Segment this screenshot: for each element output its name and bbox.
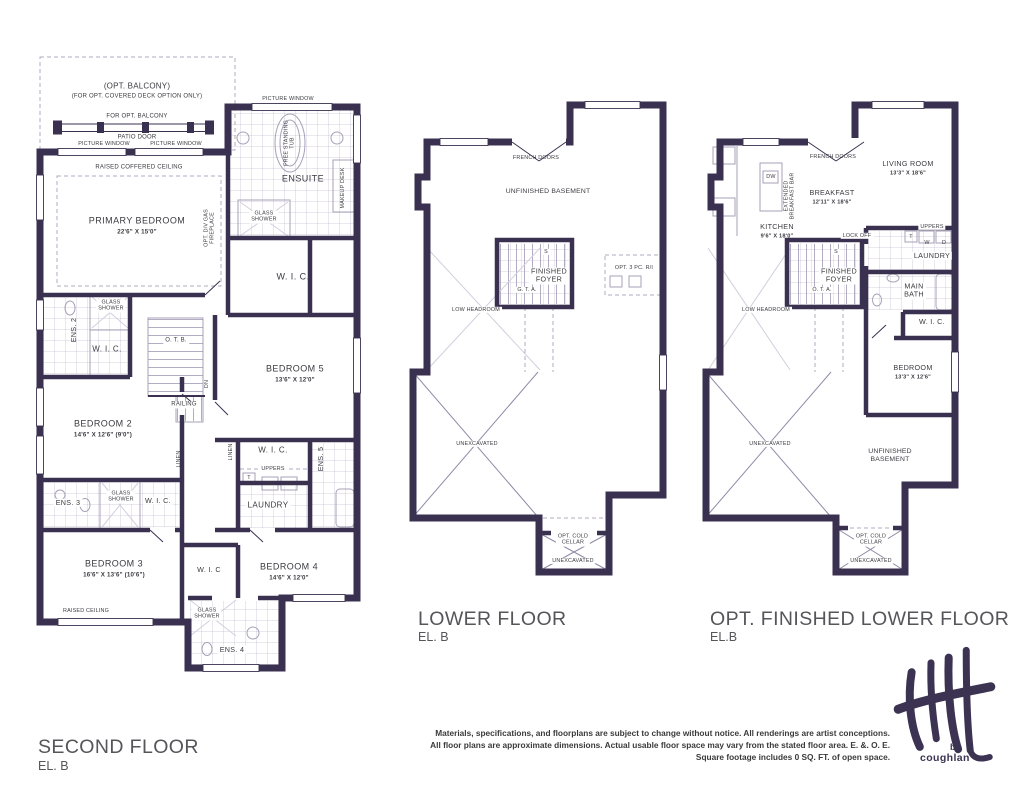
label-opt-gas-fireplace: OPT. D/V GAS FIREPLACE — [204, 207, 217, 249]
room-label-wic-opt: W. I. C. — [917, 318, 947, 326]
plan-elevation-opt-lower-floor: EL.B — [710, 630, 737, 644]
label-unexcavated-opt: UNEXCAVATED — [747, 441, 792, 447]
room-label-unfinished-basement-opt: UNFINISHED BASEMENT — [868, 448, 912, 464]
label-glass-shower-ens3: GLASS SHOWER — [106, 491, 135, 504]
room-label-wic-hall: W. I. C. — [258, 445, 287, 454]
dim-primary-bedroom: 22'6" X 15'0" — [117, 228, 157, 235]
room-label-laundry-opt: LAUNDRY — [912, 252, 952, 260]
label-stairs-dn: DN — [204, 378, 210, 390]
dim-kitchen: 9'6" X 18'0" — [761, 234, 794, 241]
plan-title-opt-lower-floor: OPT. FINISHED LOWER FLOOR — [710, 608, 1009, 631]
label-raised-coffered-ceiling: RAISED COFFERED CEILING — [95, 164, 182, 171]
floorplan-sheet: (OPT. BALCONY) (FOR OPT. COVERED DECK OP… — [0, 0, 1024, 791]
label-linen-1: LINEN — [176, 451, 182, 468]
label-open-to-below: O. T. B. — [163, 337, 189, 344]
patio-door-posts — [53, 121, 214, 135]
plan-title-second-floor: SECOND FLOOR — [38, 736, 199, 759]
dim-bedroom3: 16'6" X 13'6" (10'6") — [83, 571, 145, 578]
room-label-ens5: ENS. 5 — [317, 447, 325, 472]
room-label-breakfast: BREAKFAST — [809, 189, 854, 197]
room-label-finished-foyer-opt: FINISHED FOYER — [819, 268, 859, 285]
label-makeup-desk: MAKEUP DESK — [340, 167, 346, 208]
label-glass-shower-ens4: GLASS SHOWER — [192, 608, 221, 621]
room-label-bedroom3: BEDROOM 3 — [85, 559, 143, 570]
label-railing: RAILING — [169, 401, 198, 408]
label-glass-shower-ens2: GLASS SHOWER — [96, 300, 125, 313]
label-linen-2: LINEN — [228, 444, 234, 461]
label-opt-balcony-note: (FOR OPT. COVERED DECK OPTION ONLY) — [72, 93, 203, 100]
label-low-headroom-lower: LOW HEADROOM — [450, 307, 502, 313]
label-stair-s-opt: S — [832, 249, 840, 255]
label-ota-opt: O. T. A. — [810, 287, 833, 293]
coughlan-logo-icon — [894, 649, 995, 764]
room-label-bedroom5: BEDROOM 5 — [266, 364, 324, 375]
dim-bedroom2: 14'6" X 12'6" (9'0") — [74, 431, 132, 438]
plan-title-lower-floor: LOWER FLOOR — [418, 608, 567, 631]
room-label-finished-foyer-lower: FINISHED FOYER — [529, 268, 569, 285]
room-label-wic-bedroom4: W. I. C — [197, 566, 221, 574]
label-tub-box-opt: T — [909, 234, 913, 240]
disclaimer-line-1: Materials, specifications, and floorplan… — [430, 727, 890, 739]
label-glass-shower-ensuite: GLASS SHOWER — [249, 211, 278, 224]
label-french-doors-lower: FRENCH DOORS — [513, 155, 559, 161]
label-washer-2f: W — [267, 481, 272, 487]
label-low-headroom-opt: LOW HEADROOM — [740, 307, 792, 313]
room-label-bedroom2: BEDROOM 2 — [74, 419, 132, 430]
label-gta-lower: G. T. A. — [515, 287, 538, 293]
room-label-bedroom-opt: BEDROOM — [893, 364, 932, 372]
label-uppers-opt: UPPERS — [918, 224, 945, 230]
room-label-bedroom4: BEDROOM 4 — [260, 562, 318, 573]
label-dryer-opt: D — [942, 240, 946, 246]
label-free-standing-tub: FREE STANDING TUB — [284, 120, 297, 166]
label-washer-opt: W — [924, 240, 929, 246]
label-picture-window-3: PICTURE WINDOW — [262, 96, 314, 102]
label-opt-cold-cellar-lower: OPT. COLD CELLAR — [556, 534, 590, 547]
label-uppers-2f: UPPERS — [259, 466, 286, 472]
label-unexcavated-cellar-opt: UNEXCAVATED — [848, 558, 893, 564]
label-unexcavated-lower: UNEXCAVATED — [454, 441, 499, 447]
unexcavated-hatch — [413, 372, 905, 571]
label-dishwasher: DW — [764, 174, 777, 180]
label-dryer-2f: D — [287, 481, 291, 487]
room-label-unfinished-basement-lower: UNFINISHED BASEMENT — [506, 188, 591, 196]
room-label-kitchen: KITCHEN — [760, 223, 794, 231]
label-picture-window-2: PICTURE WINDOW — [150, 141, 202, 147]
dim-bedroom5: 13'6" X 12'0" — [275, 376, 315, 383]
label-raised-ceiling: RAISED CEILING — [63, 608, 109, 614]
label-unexcavated-cellar-lower: UNEXCAVATED — [550, 558, 595, 564]
label-picture-window-1: PICTURE WINDOW — [78, 141, 130, 147]
label-lock-off: LOCK OFF — [841, 233, 874, 239]
dim-bedroom4: 14'6" X 12'0" — [269, 574, 309, 581]
room-label-main-bath: MAIN BATH — [902, 283, 926, 300]
label-extended-breakfast-bar: EXTENDED BREAKFAST BAR — [784, 171, 797, 222]
plan-elevation-lower-floor: EL. B — [418, 630, 449, 644]
room-label-wic-primary: W. I. C. — [276, 272, 309, 283]
room-label-ensuite: ENSUITE — [282, 174, 324, 185]
label-opt-3pc-rough-in: OPT. 3 PC. R/I — [613, 265, 655, 271]
dim-living-room: 13'3" X 18'6" — [890, 171, 926, 178]
french-door-gaps — [512, 138, 864, 146]
room-label-ens3: ENS. 3 — [54, 499, 83, 507]
label-for-opt-balcony: FOR OPT. BALCONY — [106, 113, 167, 120]
room-label-ens4: ENS. 4 — [218, 646, 247, 654]
logo-by-text: by — [950, 742, 961, 752]
room-label-wic-ens2: W. I. C. — [92, 344, 121, 353]
room-label-primary-bedroom: PRIMARY BEDROOM — [89, 216, 185, 227]
logo-brand-name: coughlan — [920, 752, 970, 764]
room-label-living-room: LIVING ROOM — [882, 160, 933, 168]
room-label-wic-ens3: W. I. C. — [143, 497, 173, 505]
room-label-laundry-2f: LAUNDRY — [246, 500, 291, 509]
label-tub-box-2f: T — [247, 475, 251, 481]
disclaimer-line-3: Square footage includes 0 SQ. FT. of ope… — [430, 751, 890, 763]
disclaimer-text: Materials, specifications, and floorplan… — [430, 727, 890, 763]
label-opt-cold-cellar-opt: OPT. COLD CELLAR — [854, 534, 888, 547]
dim-bedroom-opt: 13'3" X 12'6" — [895, 375, 931, 382]
room-label-ens2: ENS. 2 — [70, 318, 78, 343]
disclaimer-line-2: All floor plans are approximate dimensio… — [430, 739, 890, 751]
label-french-doors-opt: FRENCH DOORS — [810, 154, 856, 160]
dim-breakfast: 12'11" X 18'6" — [812, 200, 851, 207]
label-stair-s-lower: S — [542, 249, 550, 255]
label-opt-balcony: (OPT. BALCONY) — [104, 81, 170, 90]
plan-elevation-second-floor: EL. B — [38, 759, 69, 773]
